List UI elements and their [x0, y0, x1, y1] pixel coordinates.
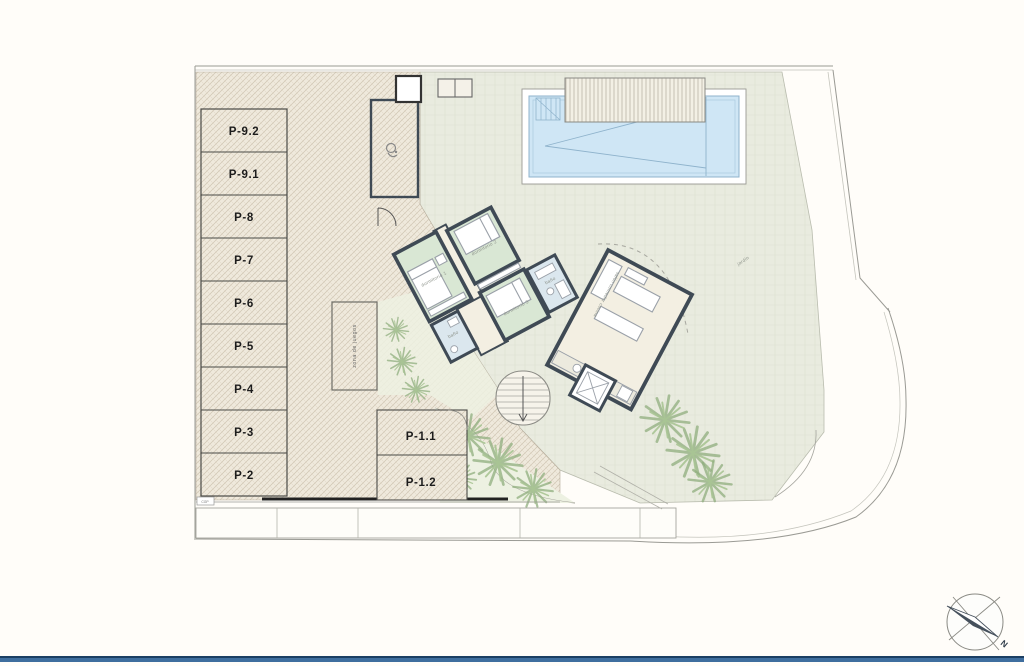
stall-label-p91: P-9.1 [229, 169, 260, 181]
stall-label-p5: P-5 [234, 341, 254, 353]
pool-steps [536, 98, 560, 120]
swimming-pool [522, 78, 746, 184]
stall-label-p11: P-1.1 [406, 431, 437, 443]
site-plan-page: CGP P-9.2 P-9.1 P-8 P-7 P-6 P-5 P-4 P-3 … [0, 0, 1024, 666]
front-parking-stalls: P-1.1 P-1.2 [377, 410, 467, 500]
play-area-label: zona de juegos [352, 324, 358, 368]
stall-label-p4: P-4 [234, 384, 254, 396]
stall-label-p8: P-8 [234, 212, 254, 224]
site-plan-drawing: CGP P-9.2 P-9.1 P-8 P-7 P-6 P-5 P-4 P-3 … [0, 0, 1024, 666]
stall-label-p12: P-1.2 [406, 477, 437, 489]
stall-label-p92: P-9.2 [229, 126, 260, 138]
utility-box-label: CGP [201, 500, 209, 504]
play-area-box: zona de juegos [332, 302, 377, 390]
entrance-stairs [496, 371, 550, 425]
stall-label-p3: P-3 [234, 427, 254, 439]
stall-label-p6: P-6 [234, 298, 254, 310]
compass-rose: N [947, 594, 1010, 650]
north-label: N [999, 638, 1010, 650]
footer-bar [0, 656, 1024, 662]
pool-deck [565, 78, 705, 122]
stall-label-p2: P-2 [234, 470, 254, 482]
stall-label-p7: P-7 [234, 255, 254, 267]
sidewalk-band: CGP [196, 497, 676, 538]
